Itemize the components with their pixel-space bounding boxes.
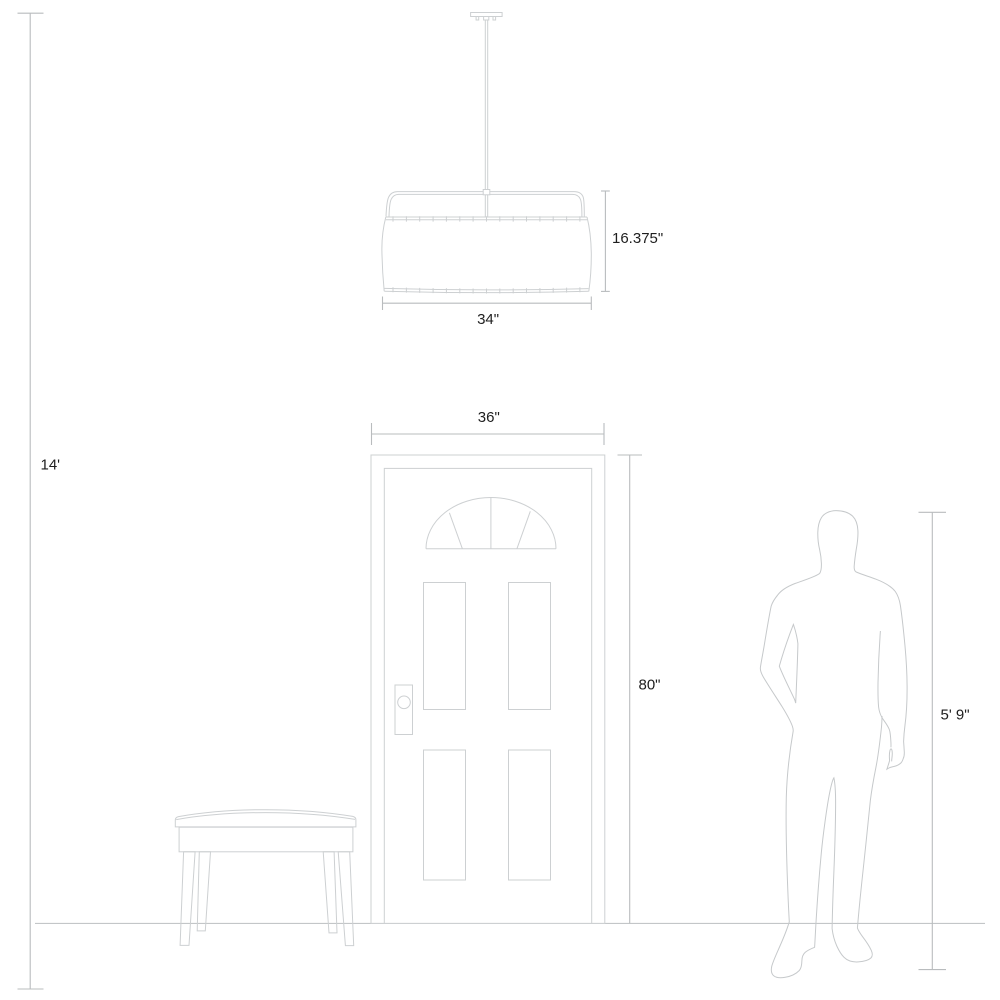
svg-text:5' 9": 5' 9" [941,706,970,723]
svg-text:34": 34" [477,311,499,328]
svg-text:14': 14' [41,456,61,473]
svg-text:80": 80" [639,676,661,693]
svg-text:16.375": 16.375" [612,230,663,247]
svg-text:36": 36" [478,409,500,426]
